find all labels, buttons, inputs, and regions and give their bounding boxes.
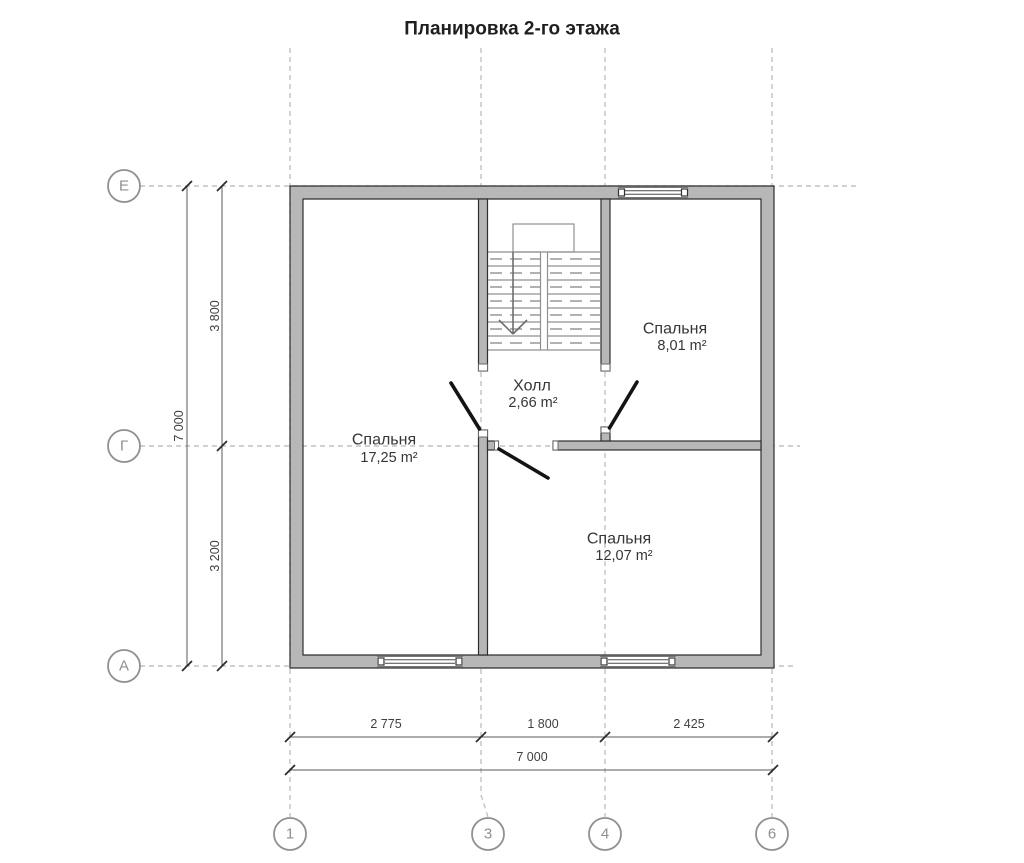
room-area-hall: 2,66 m² xyxy=(508,395,557,411)
window-jamb xyxy=(682,189,688,196)
window-jamb xyxy=(378,658,384,665)
dim-left-lower: 3 200 xyxy=(208,540,222,571)
window-jamb xyxy=(601,658,607,665)
room-area-bedroom-8: 8,01 m² xyxy=(657,338,706,354)
window-opening xyxy=(377,656,463,668)
axis-letter-A: А xyxy=(119,658,129,675)
dim-left-upper: 3 800 xyxy=(208,300,222,331)
stairwell-wall-right xyxy=(601,199,610,371)
wall-end-cap xyxy=(479,364,488,371)
hall-bedroom-wall xyxy=(553,441,761,450)
axis-markers: Е Г А 1 3 4 6 xyxy=(108,170,788,850)
page-title: Планировка 2-го этажа xyxy=(404,19,620,40)
axis-letter-E: Е xyxy=(119,178,129,195)
stairwell-wall-left xyxy=(479,199,488,371)
axis-letter-G: Г xyxy=(120,438,128,455)
window-opening xyxy=(618,187,688,199)
wall-end-cap xyxy=(553,441,558,450)
room-name-hall: Холл xyxy=(513,378,551,395)
door-leaf-bedroom-8 xyxy=(610,382,638,428)
room-name-bedroom-8: Спальня xyxy=(643,321,707,338)
room-name-bedroom-12: Спальня xyxy=(587,531,651,548)
dim-bottom-seg-1: 2 775 xyxy=(370,717,401,731)
dim-left-total: 7 000 xyxy=(172,410,186,441)
floor-plan-page: 7 000 3 800 3 200 2 775 1 800 2 425 7 00… xyxy=(0,0,1024,863)
room-name-bedroom-17: Спальня xyxy=(352,432,416,449)
axis-number-4: 4 xyxy=(601,826,609,843)
door-leaf-bedroom-12 xyxy=(499,449,548,478)
left-dimensions: 7 000 3 800 3 200 xyxy=(172,181,227,671)
room-area-bedroom-12: 12,07 m² xyxy=(595,548,652,564)
stair-divider xyxy=(541,252,548,350)
wall-end-cap xyxy=(601,364,610,371)
door-leaf-bedroom-17 xyxy=(451,383,480,429)
dim-bottom-seg-2: 1 800 xyxy=(527,717,558,731)
dim-bottom-seg-3: 2 425 xyxy=(673,717,704,731)
bedroom-partition-wall xyxy=(479,430,488,655)
room-area-bedroom-17: 17,25 m² xyxy=(360,450,417,466)
stair-landing xyxy=(513,224,574,252)
staircase xyxy=(488,224,600,350)
wall-end-cap xyxy=(479,430,488,437)
exterior-walls xyxy=(290,186,774,668)
axis-number-6: 6 xyxy=(768,826,776,843)
dim-bottom-total: 7 000 xyxy=(516,750,547,764)
window-jamb xyxy=(456,658,462,665)
axis-grid-lines xyxy=(140,48,858,817)
window-opening xyxy=(600,656,676,668)
axis-number-1: 1 xyxy=(286,826,294,843)
bottom-dimensions: 2 775 1 800 2 425 7 000 xyxy=(285,717,778,775)
axis-number-3: 3 xyxy=(484,826,492,843)
floor-plan-drawing: 7 000 3 800 3 200 2 775 1 800 2 425 7 00… xyxy=(0,0,1024,863)
interior-walls xyxy=(479,199,762,655)
window-jamb xyxy=(619,189,625,196)
window-jamb xyxy=(669,658,675,665)
